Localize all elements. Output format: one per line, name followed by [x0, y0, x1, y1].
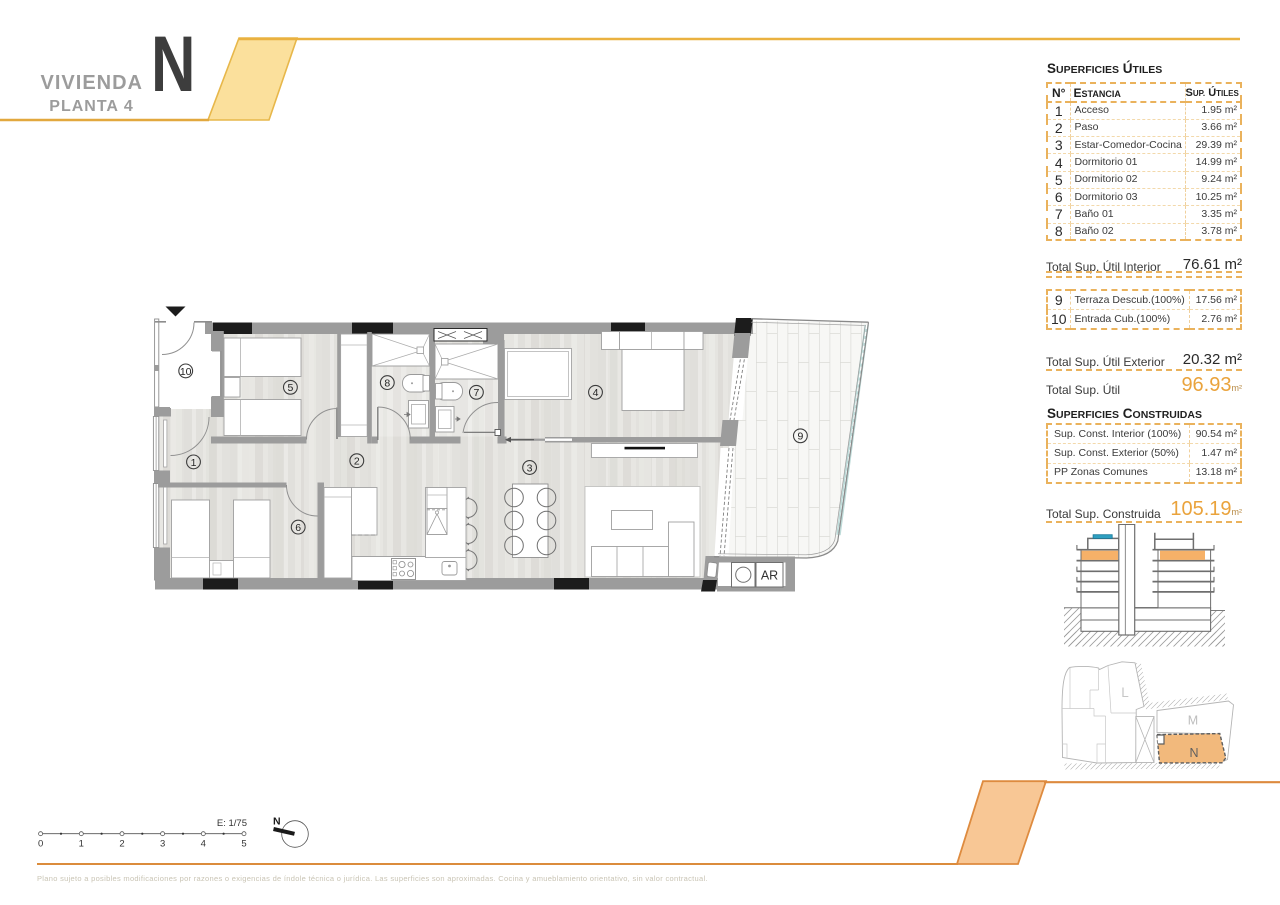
svg-text:3: 3 [527, 462, 533, 474]
svg-text:8: 8 [384, 378, 390, 390]
svg-text:2: 2 [119, 839, 124, 850]
svg-text:5: 5 [287, 382, 293, 394]
svg-text:1: 1 [79, 839, 84, 850]
svg-text:M: M [1188, 714, 1198, 728]
svg-text:9: 9 [797, 431, 803, 443]
svg-text:L: L [1121, 685, 1129, 700]
svg-text:N: N [273, 816, 281, 828]
svg-text:4: 4 [593, 387, 599, 399]
svg-text:E: 1/75: E: 1/75 [217, 818, 247, 829]
svg-text:0: 0 [38, 839, 43, 850]
svg-text:6: 6 [295, 522, 301, 534]
svg-text:N: N [1189, 746, 1198, 760]
svg-text:1: 1 [191, 457, 197, 469]
svg-text:2: 2 [354, 456, 360, 468]
svg-text:3: 3 [160, 839, 165, 850]
svg-text:4: 4 [201, 839, 206, 850]
svg-text:7: 7 [473, 387, 479, 399]
svg-text:5: 5 [241, 839, 246, 850]
svg-text:10: 10 [180, 366, 192, 378]
svg-text:AR: AR [761, 569, 778, 583]
